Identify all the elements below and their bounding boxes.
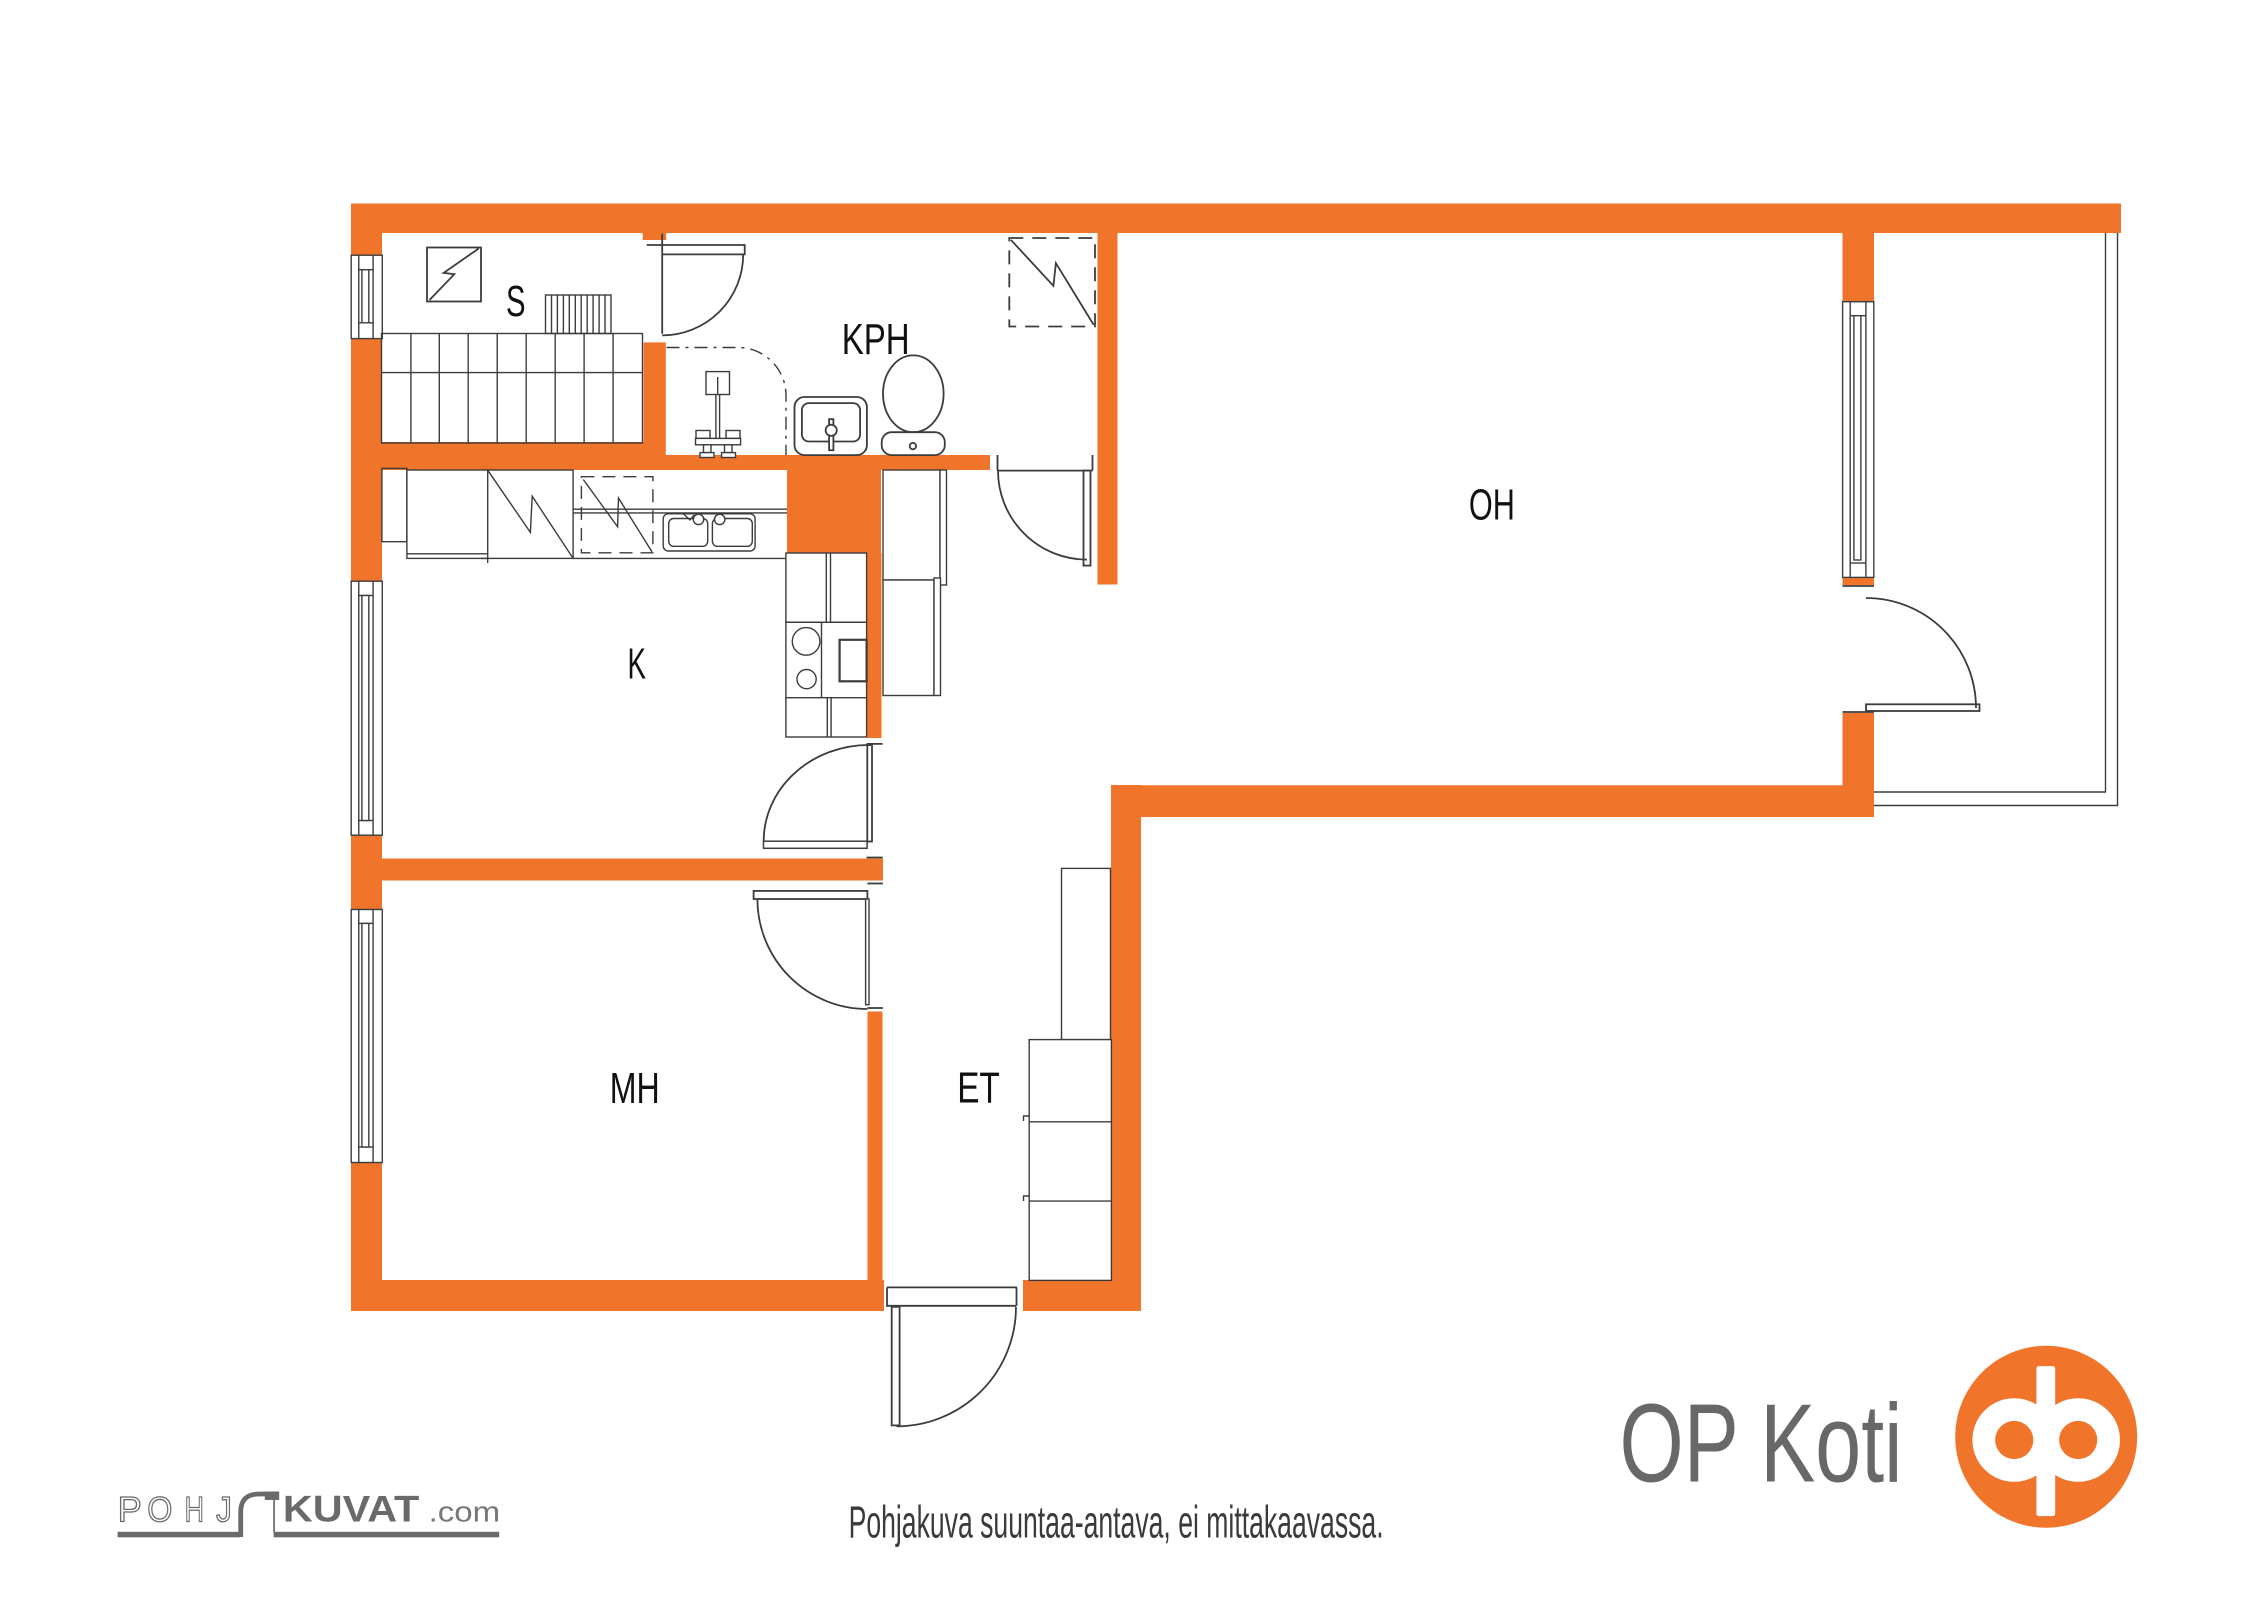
svg-text:KUVAT: KUVAT [283,1488,420,1529]
svg-text:H: H [185,1489,205,1529]
svg-text:MH: MH [610,1064,660,1113]
svg-text:K: K [628,639,647,688]
svg-text:J: J [216,1489,232,1529]
svg-text:KPH: KPH [842,315,910,364]
svg-text:S: S [506,277,526,326]
svg-text:O: O [147,1489,172,1529]
svg-text:OH: OH [1469,481,1515,530]
svg-text:Pohjakuva suuntaa-antava, ei m: Pohjakuva suuntaa-antava, ei mittakaavas… [849,1497,1384,1548]
svg-text:.com: .com [429,1496,501,1528]
svg-text:P: P [118,1489,142,1529]
svg-text:ET: ET [957,1064,1000,1113]
svg-text:OP Koti: OP Koti [1620,1382,1903,1506]
